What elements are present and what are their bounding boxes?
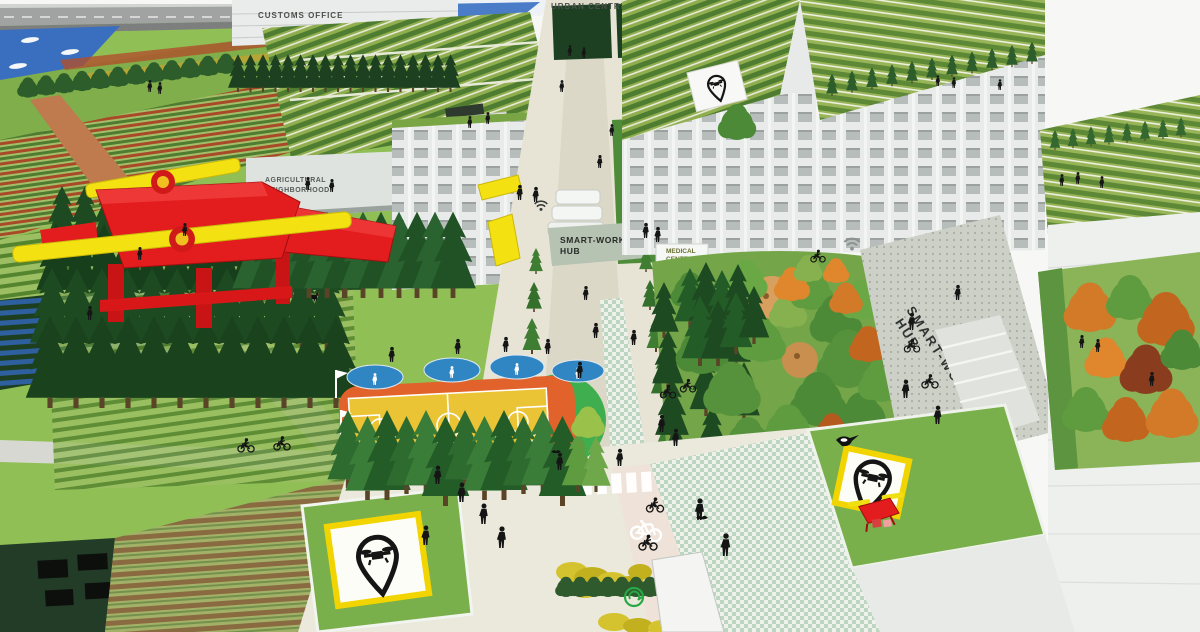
agricultural-label-1: AGRICULTURAL <box>265 177 326 184</box>
medical-label-1: MEDICAL <box>666 248 696 255</box>
urban-centre-label: URBAN CENTRE <box>551 2 627 11</box>
scene-canvas: CUSTOMS OFFICE AGRICULTURAL NEIGHBORHOOD… <box>0 0 1200 632</box>
hub-label-2: HUB <box>560 246 580 256</box>
park-clearing <box>782 342 818 378</box>
masterplan-rendering: CUSTOMS OFFICE AGRICULTURAL NEIGHBORHOOD… <box>0 0 1200 632</box>
customs-office-label: CUSTOMS OFFICE <box>258 11 343 20</box>
hedge-row <box>555 577 661 597</box>
hedge-block <box>552 4 612 60</box>
drone-pad <box>327 514 429 606</box>
